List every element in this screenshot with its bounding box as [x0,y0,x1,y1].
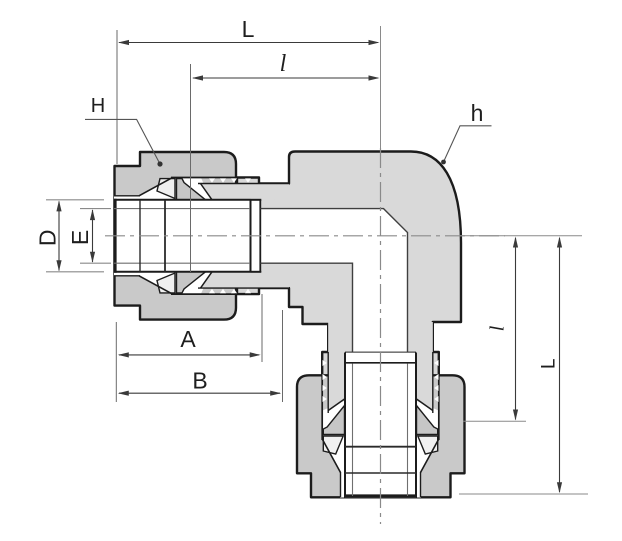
svg-text:l: l [280,51,287,77]
svg-text:L: L [539,358,560,369]
svg-text:D: D [35,229,61,246]
svg-text:E: E [67,230,93,245]
svg-text:l: l [487,325,509,331]
svg-text:h: h [471,100,484,126]
svg-text:B: B [192,368,207,394]
svg-text:H: H [91,95,105,117]
svg-text:L: L [242,16,255,42]
svg-text:A: A [180,326,196,352]
